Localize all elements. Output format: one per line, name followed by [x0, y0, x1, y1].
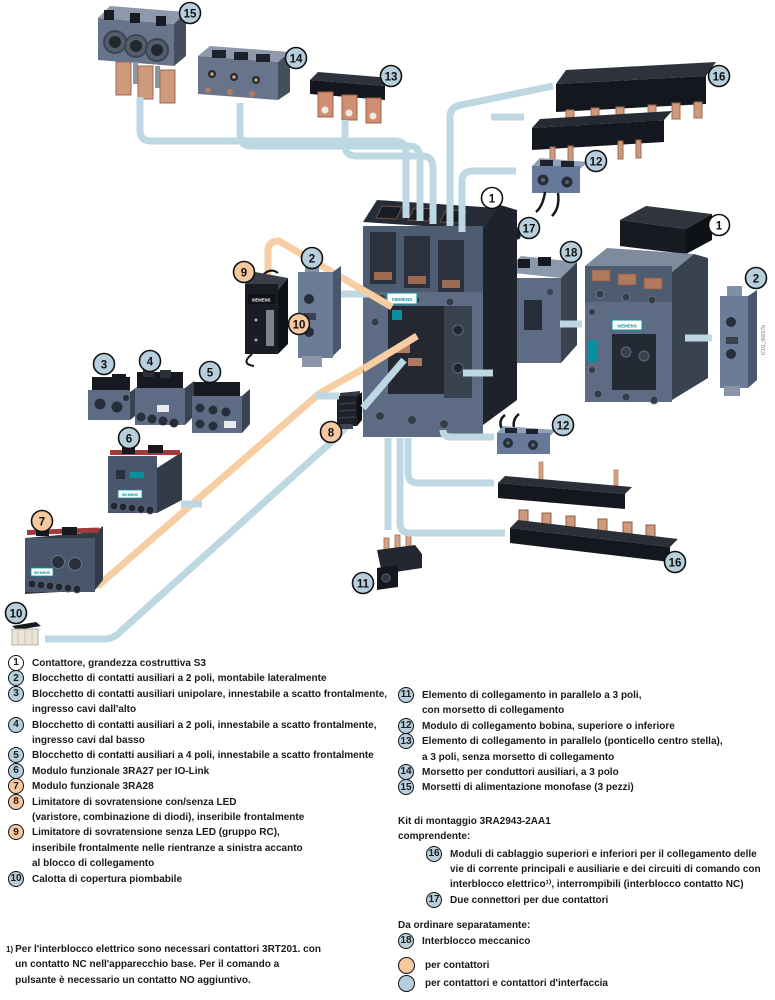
- color-key-row: per contattori: [398, 957, 772, 974]
- kit-items: 16 Moduli di cablaggio superiori e infer…: [398, 847, 772, 909]
- brand-label: SIEMENS: [392, 297, 413, 302]
- item-number-badge: 1: [8, 655, 24, 671]
- callout-7: 7: [32, 511, 53, 532]
- item-text: Calotta di copertura piombabile: [32, 872, 182, 887]
- item-number-badge: 5: [8, 747, 24, 763]
- component-3-aux-contact-block-1pole: [88, 374, 140, 420]
- item-text: Modulo di collegamento bobina, superiore…: [422, 719, 675, 734]
- callout-3: 3: [94, 354, 115, 375]
- component-13-parallel-link: [310, 72, 392, 123]
- legend-item: 14 Morsetto per conduttori ausiliari, a …: [398, 765, 772, 780]
- item-text: Blocchetto di contatti ausiliari a 2 pol…: [32, 671, 327, 686]
- item-number-badge: 17: [426, 892, 442, 908]
- item-number-badge: 7: [8, 778, 24, 794]
- callout-2: 2: [746, 268, 767, 289]
- callout-16: 16: [709, 66, 730, 87]
- callout-15: 15: [180, 3, 201, 24]
- component-12-coil-connection-module-top: [532, 158, 588, 216]
- color-key: per contattori per contattori e contatto…: [398, 957, 772, 992]
- component-14-aux-conductor-terminal: [198, 46, 290, 100]
- legend-item: 5 Blocchetto di contatti ausiliari a 4 p…: [8, 748, 396, 763]
- kit-subtitle: comprendente:: [398, 829, 772, 844]
- legend-item: 7 Modulo funzionale 3RA28: [8, 779, 396, 794]
- svg-text:18: 18: [565, 247, 578, 259]
- callout-10: 10: [289, 314, 310, 335]
- callout-6: 6: [119, 428, 140, 449]
- callout-18: 18: [561, 242, 582, 263]
- svg-text:2: 2: [753, 273, 759, 285]
- callout-1: 1: [709, 215, 730, 236]
- svg-text:10: 10: [10, 608, 23, 620]
- svg-text:15: 15: [184, 8, 197, 20]
- component-10-sealable-cover: [12, 622, 41, 645]
- component-1-contactor-right: SIEMENS: [585, 206, 712, 404]
- callout-9: 9: [234, 262, 255, 283]
- callout-5: 5: [200, 362, 221, 383]
- legend-right-items: 11 Elemento di collegamento in parallelo…: [398, 688, 772, 796]
- page: SIEMENS: [0, 0, 775, 1000]
- item-text: Elemento di collegamento in parallelo a …: [422, 688, 642, 719]
- component-15-single-phase-feed-terminals: [98, 6, 186, 103]
- item-text: Limitatore di sovratensione con/senza LE…: [32, 795, 304, 826]
- callout-13: 13: [381, 66, 402, 87]
- svg-text:6: 6: [126, 433, 132, 445]
- brand-label: SIEMENS: [34, 571, 51, 575]
- svg-text:2: 2: [309, 253, 315, 265]
- item-number-badge: 18: [398, 933, 414, 949]
- svg-text:13: 13: [385, 71, 398, 83]
- svg-text:8: 8: [328, 427, 335, 439]
- component-8-surge-limiter: [337, 391, 362, 429]
- legend-left-column: 1 Contattore, grandezza costruttiva S3 2…: [8, 656, 396, 887]
- item-number-badge: 14: [398, 764, 414, 780]
- svg-text:12: 12: [590, 156, 603, 168]
- svg-text:16: 16: [713, 71, 726, 83]
- legend-item: 12 Modulo di collegamento bobina, superi…: [398, 719, 772, 734]
- image-watermark: IC01_00017b: [761, 325, 767, 355]
- separate-order-items: 18 Interblocco meccanico: [398, 934, 772, 949]
- item-number-badge: 3: [8, 686, 24, 702]
- callout-4: 4: [140, 351, 161, 372]
- kit-title: Kit di montaggio 3RA2943-2AA1: [398, 814, 772, 829]
- legend-item: 11 Elemento di collegamento in parallelo…: [398, 688, 772, 719]
- component-4-aux-contact-block-2pole: [135, 369, 194, 428]
- legend-item: 10 Calotta di copertura piombabile: [8, 872, 396, 887]
- legend-item: 3 Blocchetto di contatti ausiliari unipo…: [8, 687, 396, 718]
- item-text: Elemento di collegamento in parallelo (p…: [422, 734, 723, 765]
- callout-17: 17: [519, 218, 540, 239]
- svg-text:9: 9: [241, 267, 247, 279]
- callout-12: 12: [586, 151, 607, 172]
- component-2-aux-contact-block-right: IC01_00017b: [720, 286, 767, 396]
- component-1-contactor-left: SIEMENS: [363, 200, 517, 437]
- color-key-dot: [398, 957, 415, 974]
- legend-right-column: 11 Elemento di collegamento in parallelo…: [398, 688, 772, 993]
- item-number-badge: 12: [398, 718, 414, 734]
- svg-text:11: 11: [357, 578, 370, 590]
- legend-item: 1 Contattore, grandezza costruttiva S3: [8, 656, 396, 671]
- brand-label: SIEMENS: [252, 298, 271, 303]
- legend-item: 13 Elemento di collegamento in parallelo…: [398, 734, 772, 765]
- svg-text:12: 12: [557, 420, 570, 432]
- svg-text:7: 7: [39, 516, 45, 528]
- svg-text:14: 14: [290, 53, 303, 65]
- callout-2: 2: [302, 248, 323, 269]
- color-key-label: per contattori: [425, 958, 489, 973]
- item-text: Morsetto per conduttori ausiliari, a 3 p…: [422, 765, 619, 780]
- callout-10: 10: [6, 603, 27, 624]
- item-text: Contattore, grandezza costruttiva S3: [32, 656, 206, 671]
- footnote-marker: 1): [6, 945, 13, 954]
- brand-label: SIEMENS: [122, 493, 139, 497]
- svg-text:16: 16: [669, 557, 682, 569]
- item-number-badge: 6: [8, 763, 24, 779]
- callout-11: 11: [353, 573, 374, 594]
- svg-text:3: 3: [101, 359, 107, 371]
- brand-label: SIEMENS: [617, 324, 637, 329]
- item-text: Moduli di cablaggio superiori e inferior…: [450, 847, 761, 893]
- callout-8: 8: [321, 422, 342, 443]
- item-number-badge: 4: [8, 717, 24, 733]
- callout-1: 1: [482, 188, 503, 209]
- component-12-coil-connection-module-bottom: [497, 414, 556, 454]
- item-text: Blocchetto di contatti ausiliari unipola…: [32, 687, 387, 718]
- svg-text:17: 17: [523, 223, 536, 235]
- component-6-function-module-3ra27: SIEMENS: [108, 445, 182, 514]
- exploded-diagram: SIEMENS: [0, 0, 775, 655]
- legend-item: 17 Due connettori per due contattori: [398, 893, 772, 908]
- component-5-aux-contact-block-4pole: [192, 382, 250, 433]
- item-text: Blocchetto di contatti ausiliari a 2 pol…: [32, 718, 377, 749]
- item-text: Due connettori per due contattori: [450, 893, 608, 908]
- item-number-badge: 16: [426, 846, 442, 862]
- component-16-wiring-module-bottom: [498, 462, 678, 562]
- svg-text:1: 1: [489, 193, 496, 205]
- legend-item: 6 Modulo funzionale 3RA27 per IO-Link: [8, 764, 396, 779]
- item-text: Interblocco meccanico: [422, 934, 530, 949]
- legend-item: 8 Limitatore di sovratensione con/senza …: [8, 795, 396, 826]
- legend-item: 4 Blocchetto di contatti ausiliari a 2 p…: [8, 718, 396, 749]
- item-text: Morsetti di alimentazione monofase (3 pe…: [422, 780, 634, 795]
- item-number-badge: 10: [8, 871, 24, 887]
- footnote: 1)Per l'interblocco elettrico sono neces…: [6, 942, 390, 988]
- legend-item: 2 Blocchetto di contatti ausiliari a 2 p…: [8, 671, 396, 686]
- item-number-badge: 15: [398, 779, 414, 795]
- component-16-wiring-module-top: [532, 62, 716, 165]
- color-key-label: per contattori e contattori d'interfacci…: [425, 976, 608, 991]
- item-number-badge: 11: [398, 687, 414, 703]
- component-11-parallel-link-with-terminal: [377, 533, 422, 590]
- item-text: Blocchetto di contatti ausiliari a 4 pol…: [32, 748, 374, 763]
- legend-item: 15 Morsetti di alimentazione monofase (3…: [398, 780, 772, 795]
- color-key-dot: [398, 975, 415, 992]
- legend-item: 18 Interblocco meccanico: [398, 934, 772, 949]
- callout-14: 14: [286, 48, 307, 69]
- component-9-surge-suppressor: SIEMENS: [245, 271, 288, 366]
- callout-12: 12: [553, 415, 574, 436]
- svg-text:4: 4: [147, 356, 154, 368]
- svg-text:10: 10: [293, 319, 306, 331]
- item-text: Modulo funzionale 3RA28: [32, 779, 154, 794]
- legend-item: 16 Moduli di cablaggio superiori e infer…: [398, 847, 772, 893]
- separate-order-title: Da ordinare separatamente:: [398, 918, 772, 933]
- callout-16: 16: [665, 552, 686, 573]
- footnote-text: Per l'interblocco elettrico sono necessa…: [15, 942, 321, 988]
- item-number-badge: 8: [8, 794, 24, 810]
- item-text: Modulo funzionale 3RA27 per IO-Link: [32, 764, 209, 779]
- item-number-badge: 13: [398, 733, 414, 749]
- legend-item: 9 Limitatore di sovratensione senza LED …: [8, 825, 396, 871]
- component-7-function-module-3ra28: SIEMENS: [25, 526, 103, 594]
- item-number-badge: 2: [8, 670, 24, 686]
- item-text: Limitatore di sovratensione senza LED (g…: [32, 825, 303, 871]
- item-number-badge: 9: [8, 824, 24, 840]
- color-key-row: per contattori e contattori d'interfacci…: [398, 975, 772, 992]
- svg-text:5: 5: [207, 367, 214, 379]
- svg-text:1: 1: [716, 220, 723, 232]
